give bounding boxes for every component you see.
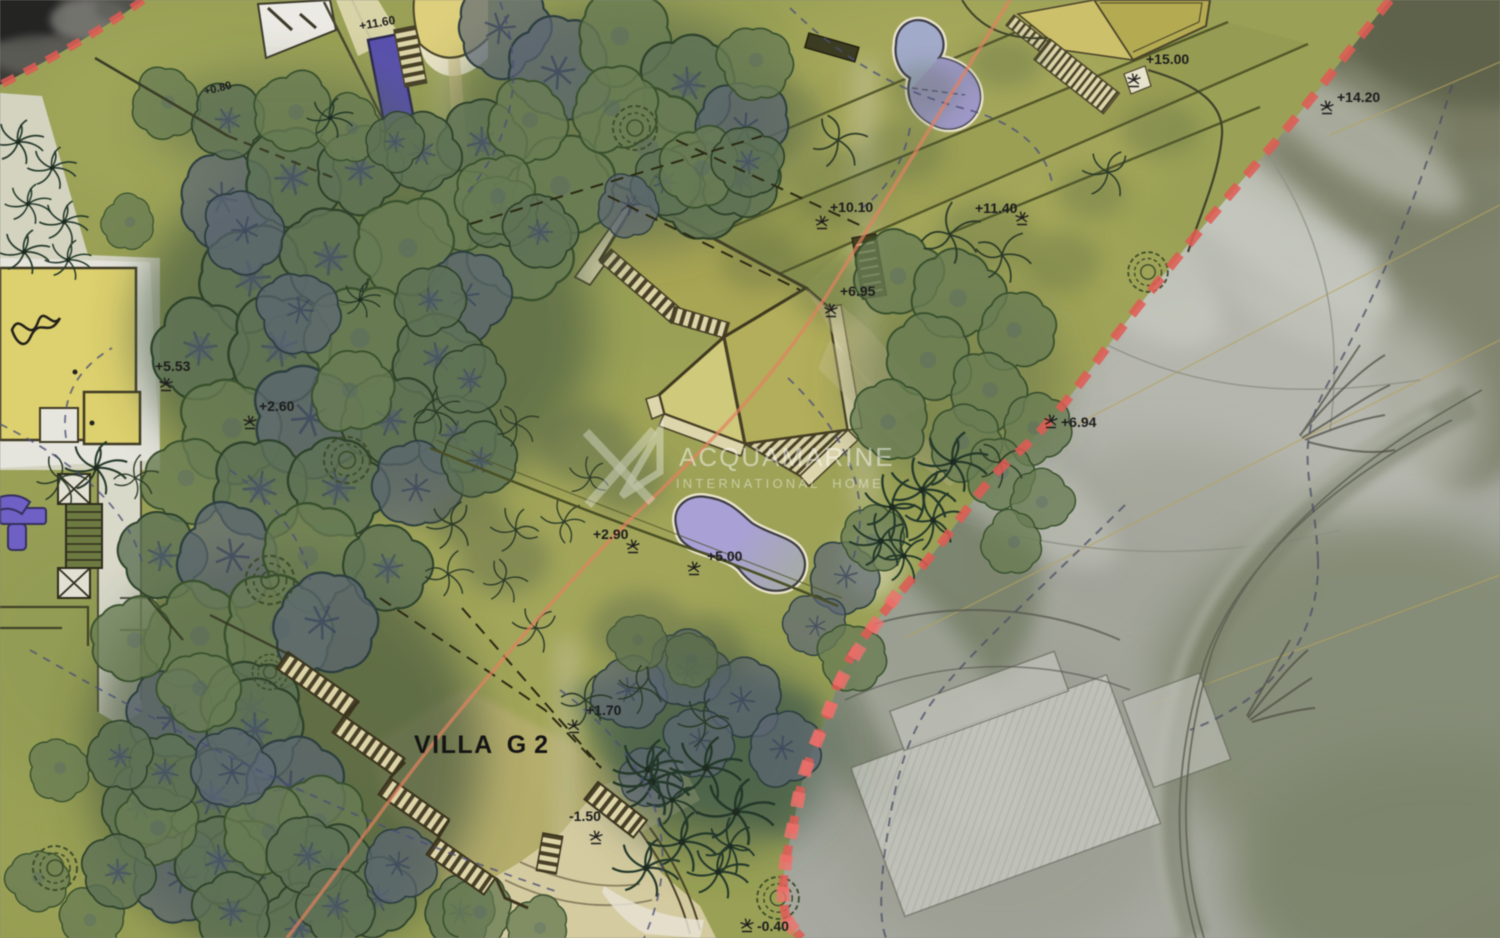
svg-text:-0.40: -0.40: [757, 918, 789, 934]
svg-text:+14.20: +14.20: [1337, 89, 1380, 105]
svg-text:+5.00: +5.00: [707, 548, 743, 564]
svg-text:-1.50: -1.50: [569, 808, 601, 824]
svg-text:+10.10: +10.10: [830, 199, 873, 215]
svg-text:+2.90: +2.90: [593, 526, 629, 542]
svg-text:VILLA G 2: VILLA G 2: [414, 731, 550, 759]
svg-text:+1.70: +1.70: [586, 702, 622, 718]
svg-text:+15.00: +15.00: [1146, 51, 1189, 67]
svg-text:+6.94: +6.94: [1061, 414, 1097, 430]
svg-text:ACQUAMARINE: ACQUAMARINE: [679, 442, 895, 472]
svg-text:+5.53: +5.53: [155, 358, 191, 374]
svg-text:INTERNATIONAL HOME: INTERNATIONAL HOME: [676, 476, 884, 491]
svg-text:+6.95: +6.95: [840, 283, 876, 299]
svg-text:+11.40: +11.40: [975, 200, 1018, 216]
svg-text:+2.60: +2.60: [259, 398, 295, 414]
